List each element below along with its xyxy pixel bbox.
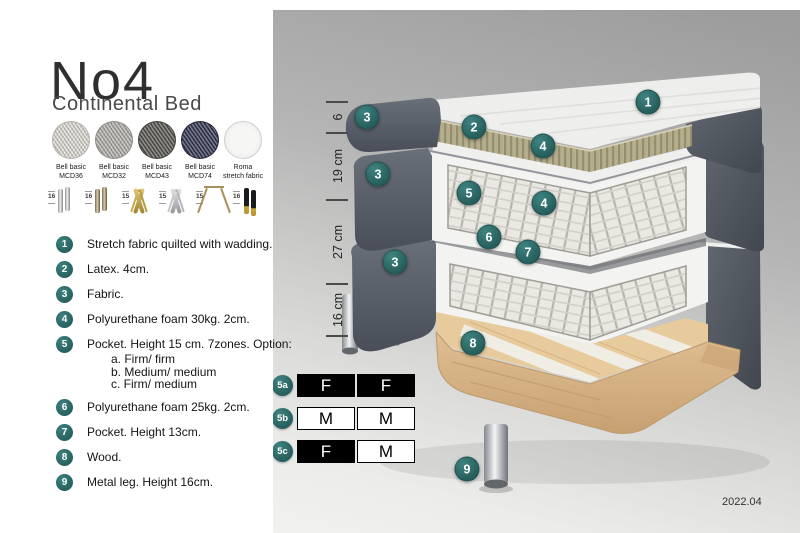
- leg-icon: [93, 186, 111, 217]
- firmness-row: 5a FF: [272, 375, 417, 396]
- measure-label: 27 cm: [331, 225, 345, 259]
- callout-badge: 2: [462, 115, 487, 140]
- leg-option: 16: [85, 186, 118, 219]
- feature-text: Pocket. Height 15 cm. 7zones. Option:: [87, 336, 292, 353]
- tick-mark: [159, 203, 166, 204]
- fabric-swatch-label: Bell basic MCD43: [142, 163, 172, 182]
- feature-options: a. Firm/ firmb. Medium/ mediumc. Firm/ m…: [111, 353, 272, 391]
- leg-height-value: 15: [159, 194, 166, 201]
- tick-mark: [196, 191, 203, 192]
- leg-option: 15: [122, 186, 155, 219]
- leg-height: 16: [85, 186, 92, 206]
- leg-option: 15: [159, 186, 192, 219]
- feature-number-badge: 6: [56, 399, 73, 416]
- feature-item: 9 Metal leg. Height 16cm.: [52, 474, 272, 491]
- feature-text: Stretch fabric quilted with wadding.: [87, 236, 272, 253]
- measure-tick: [326, 132, 348, 134]
- measure-tick: [326, 335, 348, 337]
- firmness-cells: MM: [297, 407, 417, 430]
- product-sheet: { "product": { "name": "No4", "subtitle"…: [0, 0, 800, 533]
- callout-badge: 6: [477, 225, 502, 250]
- fabric-swatch-label: Bell basic MCD36: [56, 163, 86, 182]
- leg-option: 16: [233, 186, 266, 219]
- feature-text: Polyurethane foam 25kg. 2cm.: [87, 399, 250, 416]
- tick-mark: [122, 191, 129, 192]
- fabric-swatch-item: Bell basic MCD43: [138, 121, 176, 182]
- leg-height-value: 16: [48, 194, 55, 201]
- measure-tick: [326, 101, 348, 103]
- fabric-name: Bell basic: [56, 163, 86, 172]
- feature-text: Fabric.: [87, 286, 124, 303]
- feature-text: Metal leg. Height 16cm.: [87, 474, 213, 491]
- callout-badge: 4: [532, 191, 557, 216]
- tick-mark: [233, 203, 240, 204]
- fabric-swatches: Bell basic MCD36 Bell basic MCD32 Bell b…: [52, 121, 262, 182]
- fabric-code: MCD74: [185, 172, 215, 181]
- callout-badge: 1: [636, 90, 661, 115]
- leg-height: 15: [122, 186, 129, 206]
- callout-badge: 9: [455, 457, 480, 482]
- measure-tick: [326, 283, 348, 285]
- measure-label: 16 cm: [331, 293, 345, 327]
- feature-text: Pocket. Height 13cm.: [87, 424, 201, 441]
- fabric-swatch-label: Bell basic MCD32: [99, 163, 129, 182]
- feature-text: Polyurethane foam 30kg. 2cm.: [87, 311, 250, 328]
- fabric-name: Bell basic: [185, 163, 215, 172]
- firmness-cell: F: [357, 374, 415, 397]
- feature-number-badge: 5: [56, 336, 73, 353]
- leg-option: 16: [48, 186, 81, 219]
- feature-option-line: c. Firm/ medium: [111, 378, 272, 391]
- fabric-swatch-item: Roma stretch fabric: [224, 121, 262, 182]
- firmness-row-badge: 5b: [272, 408, 293, 429]
- leg-icon: [167, 186, 185, 217]
- info-panel: No4 Continental Bed Bell basic MCD36 Bel…: [0, 0, 273, 533]
- feature-number-badge: 9: [56, 474, 73, 491]
- firmness-row: 5b MM: [272, 408, 417, 429]
- tick-mark: [122, 203, 129, 204]
- leg-height: 15: [159, 186, 166, 206]
- fabric-code: MCD43: [142, 172, 172, 181]
- firmness-row: 5c FM: [272, 441, 417, 462]
- firmness-cells: FM: [297, 440, 417, 463]
- fabric-swatch-circle: [224, 121, 262, 159]
- tick-mark: [48, 203, 55, 204]
- fabric-swatch-item: Bell basic MCD36: [52, 121, 90, 182]
- firmness-row-badge: 5a: [272, 375, 293, 396]
- feature-item: 2 Latex. 4cm.: [52, 261, 272, 278]
- fabric-swatch-circle: [138, 121, 176, 159]
- measure-tick: [326, 199, 348, 201]
- callout-badge: 4: [531, 134, 556, 159]
- feature-number-badge: 2: [56, 261, 73, 278]
- measure-label: 19 cm: [331, 149, 345, 183]
- tick-mark: [48, 191, 55, 192]
- firmness-options: 5a FF 5b MM 5c FM: [272, 375, 417, 474]
- fabric-swatch-item: Bell basic MCD32: [95, 121, 133, 182]
- feature-list: 1 Stretch fabric quilted with wadding. 2…: [52, 236, 272, 499]
- feature-number-badge: 8: [56, 449, 73, 466]
- leg-height-value: 16: [233, 194, 240, 201]
- feature-item: 3 Fabric.: [52, 286, 272, 303]
- callout-badge: 7: [516, 240, 541, 265]
- feature-option-line: a. Firm/ firm: [111, 353, 272, 366]
- tick-mark: [159, 191, 166, 192]
- feature-item: 4 Polyurethane foam 30kg. 2cm.: [52, 311, 272, 328]
- firmness-cell: M: [357, 407, 415, 430]
- feature-number-badge: 7: [56, 424, 73, 441]
- fabric-swatch-circle: [95, 121, 133, 159]
- feature-item: 1 Stretch fabric quilted with wadding.: [52, 236, 272, 253]
- feature-item: 8 Wood.: [52, 449, 272, 466]
- fabric-swatch-circle: [181, 121, 219, 159]
- tick-mark: [85, 203, 92, 204]
- leg-icon: [241, 186, 259, 217]
- firmness-cell: F: [297, 440, 355, 463]
- fabric-swatch-label: Roma stretch fabric: [223, 163, 263, 182]
- tick-mark: [233, 191, 240, 192]
- fabric-swatch-item: Bell basic MCD74: [181, 121, 219, 182]
- leg-options: 16 16 15: [48, 186, 266, 219]
- fabric-name: Roma: [223, 163, 263, 172]
- feature-number-badge: 3: [56, 286, 73, 303]
- fabric-swatch-label: Bell basic MCD74: [185, 163, 215, 182]
- leg-icon: [56, 186, 74, 217]
- callout-badge: 8: [461, 331, 486, 356]
- callout-badge: 5: [457, 181, 482, 206]
- fabric-code: stretch fabric: [223, 172, 263, 181]
- tick-mark: [85, 191, 92, 192]
- feature-item: 6 Polyurethane foam 25kg. 2cm.: [52, 399, 272, 416]
- firmness-cell: M: [357, 440, 415, 463]
- leg-icon: [130, 186, 148, 217]
- feature-text: Wood.: [87, 449, 121, 466]
- callout-badge: 3: [355, 105, 380, 130]
- feature-number-badge: 4: [56, 311, 73, 328]
- leg-height-value: 15: [122, 194, 129, 201]
- measure-label: 6: [331, 114, 345, 121]
- product-subtitle: Continental Bed: [52, 93, 202, 116]
- version-stamp: 2022.04: [722, 496, 762, 508]
- feature-number-badge: 1: [56, 236, 73, 253]
- fabric-code: MCD32: [99, 172, 129, 181]
- firmness-cell: M: [297, 407, 355, 430]
- feature-text: Latex. 4cm.: [87, 261, 149, 278]
- leg-height: 16: [48, 186, 55, 206]
- firmness-row-badge: 5c: [272, 441, 293, 462]
- feature-item: 5 Pocket. Height 15 cm. 7zones. Option: …: [52, 336, 272, 391]
- leg-height: 16: [233, 186, 240, 206]
- callout-badge: 3: [383, 250, 408, 275]
- leg-option: 15: [196, 186, 229, 219]
- feature-item: 7 Pocket. Height 13cm.: [52, 424, 272, 441]
- callout-badge: 3: [366, 162, 391, 187]
- fabric-name: Bell basic: [99, 163, 129, 172]
- firmness-cell: F: [297, 374, 355, 397]
- leg-height-value: 16: [85, 194, 92, 201]
- fabric-swatch-circle: [52, 121, 90, 159]
- fabric-code: MCD36: [56, 172, 86, 181]
- fabric-name: Bell basic: [142, 163, 172, 172]
- leg-icon: [204, 186, 224, 219]
- firmness-cells: FF: [297, 374, 417, 397]
